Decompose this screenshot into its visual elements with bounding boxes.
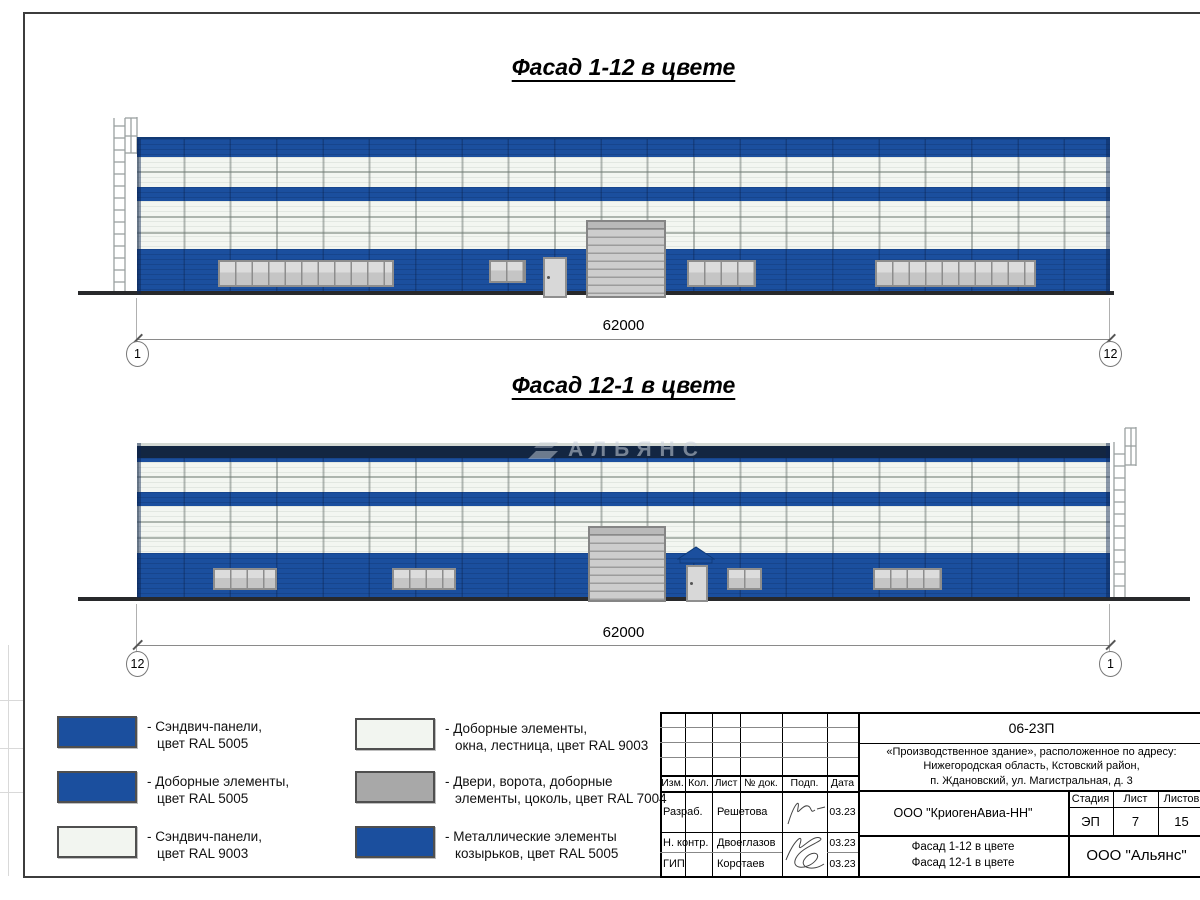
facade-1-12-title: Фасад 1-12 в цвете <box>137 54 1110 81</box>
panel-band <box>137 157 1110 187</box>
tb-sheet-label: Лист <box>1113 790 1158 807</box>
ladder-icon <box>110 116 140 293</box>
tb-header-ndok: № док. <box>740 775 782 791</box>
dimension-line <box>137 339 1110 340</box>
sectional-gate <box>586 220 666 298</box>
facade-12-1-drawing <box>137 443 1110 598</box>
tb-company: ООО "КриогенАвиа-НН" <box>858 791 1068 835</box>
corner-trim <box>1106 139 1110 294</box>
corner-trim <box>137 443 141 598</box>
legend-swatch <box>57 716 137 748</box>
legend-label: - Доборные элементы, окна, лестница, цве… <box>445 720 675 755</box>
legend-swatch <box>355 771 435 803</box>
tb-date: 03.23 <box>827 833 858 852</box>
tb-org: ООО "Альянс" <box>1068 835 1200 876</box>
tb-stage-value: ЭП <box>1068 807 1113 835</box>
frame-left <box>23 12 25 878</box>
panel-band <box>137 187 1110 201</box>
door <box>543 257 567 298</box>
watermark: АЛЬЯНС <box>528 438 706 462</box>
watermark-text: АЛЬЯНС <box>568 438 706 462</box>
signature-icon <box>782 830 830 876</box>
corner-trim <box>137 139 141 294</box>
axis-marker: 1 <box>1099 651 1122 677</box>
tb-role: Разраб. <box>660 798 715 826</box>
tb-stage-label: Стадия <box>1068 790 1113 807</box>
window <box>489 260 526 283</box>
tb-role: Н. контр. <box>660 833 715 852</box>
tb-header-kol: Кол. <box>685 775 712 791</box>
tb-date: 03.23 <box>827 853 858 875</box>
facade-12-1-title: Фасад 12-1 в цвете <box>137 372 1110 399</box>
corner-trim <box>1106 443 1110 598</box>
tb-sheets-value: 15 <box>1158 807 1200 835</box>
signature-icon <box>784 796 828 830</box>
sectional-gate <box>588 526 666 602</box>
tb-doc-number: 06-23П <box>858 712 1200 743</box>
window-strip <box>875 260 1036 287</box>
panel-band <box>137 139 1110 157</box>
margin-mark <box>0 748 23 749</box>
tb-drawing-title: Фасад 1-12 в цвете Фасад 12-1 в цвете <box>858 835 1068 876</box>
tb-date: 03.23 <box>827 798 858 826</box>
legend-swatch <box>355 826 435 858</box>
tb-header-izm: Изм. <box>660 775 685 791</box>
tb-role: ГИП <box>660 853 715 875</box>
frame-top <box>23 12 1200 14</box>
legend-label: - Доборные элементы, цвет RAL 5005 <box>147 773 357 808</box>
legend-swatch <box>57 771 137 803</box>
tb-name: Решетова <box>714 798 785 826</box>
tb-sheets-label: Листов <box>1158 790 1200 807</box>
legend-label: - Сэндвич-панели, цвет RAL 5005 <box>147 718 357 753</box>
tb-name: Коротаев <box>714 853 785 875</box>
window-strip <box>218 260 394 287</box>
legend-swatch <box>355 718 435 750</box>
legend-swatch <box>57 826 137 858</box>
axis-marker: 1 <box>126 341 149 367</box>
title-block: Изм. Кол. Лист № док. Подп. Дата Разраб.… <box>660 712 1200 878</box>
drawing-sheet: Фасад 1-12 в цвете 62000 1 12 <box>0 0 1200 900</box>
legend-label: - Двери, ворота, доборные элементы, цоко… <box>445 773 685 808</box>
tb-header-list: Лист <box>712 775 740 791</box>
facade-1-12-drawing <box>137 137 1110 294</box>
legend-label: - Сэндвич-панели, цвет RAL 9003 <box>147 828 357 863</box>
logo-icon <box>528 441 558 459</box>
margin-mark <box>0 700 23 701</box>
tb-header-data: Дата <box>827 775 858 791</box>
window-strip <box>213 568 277 590</box>
dimension-line <box>137 645 1110 646</box>
panel-band <box>137 492 1110 506</box>
window <box>727 568 762 590</box>
tb-name: Двоеглазов <box>714 833 785 852</box>
dimension-value: 62000 <box>137 317 1110 334</box>
tb-sheet-value: 7 <box>1113 807 1158 835</box>
axis-marker: 12 <box>1099 341 1122 367</box>
tb-project-address: «Производственное здание», расположенное… <box>858 743 1200 790</box>
legend-label: - Металлические элементы козырьков, цвет… <box>445 828 675 863</box>
dimension-value: 62000 <box>137 624 1110 641</box>
tb-header-podp: Подп. <box>782 775 827 791</box>
panel-band <box>137 462 1110 492</box>
window-strip <box>687 260 756 287</box>
window-strip <box>392 568 456 590</box>
canopy-icon <box>677 546 715 566</box>
door <box>686 565 708 602</box>
margin-mark <box>0 792 23 793</box>
margin-mark <box>8 645 9 876</box>
axis-marker: 12 <box>126 651 149 677</box>
window-strip <box>873 568 942 590</box>
